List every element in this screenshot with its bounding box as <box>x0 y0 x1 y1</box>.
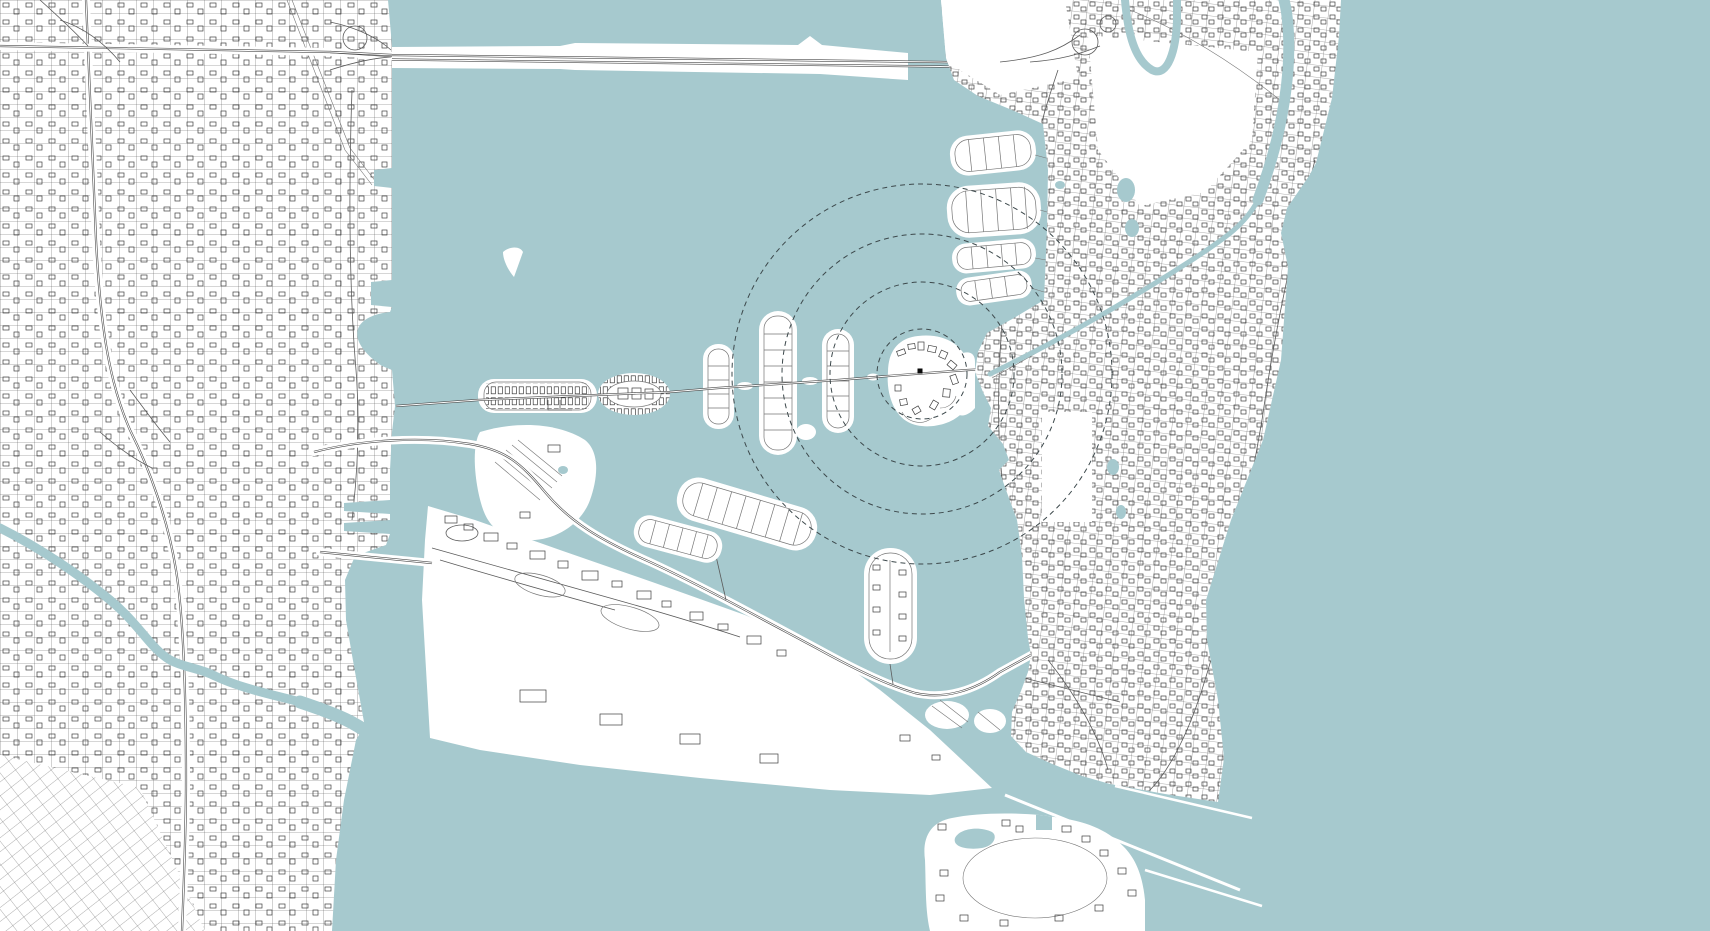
mainland <box>0 0 400 931</box>
star-shaped-island <box>864 548 917 664</box>
monument-islet <box>796 424 816 440</box>
map-canvas[interactable] <box>0 0 1710 931</box>
resort-marina-notch <box>1036 814 1052 830</box>
location-marker[interactable] <box>918 369 923 374</box>
park-block <box>1042 412 1092 522</box>
park-island-pond <box>558 466 568 474</box>
